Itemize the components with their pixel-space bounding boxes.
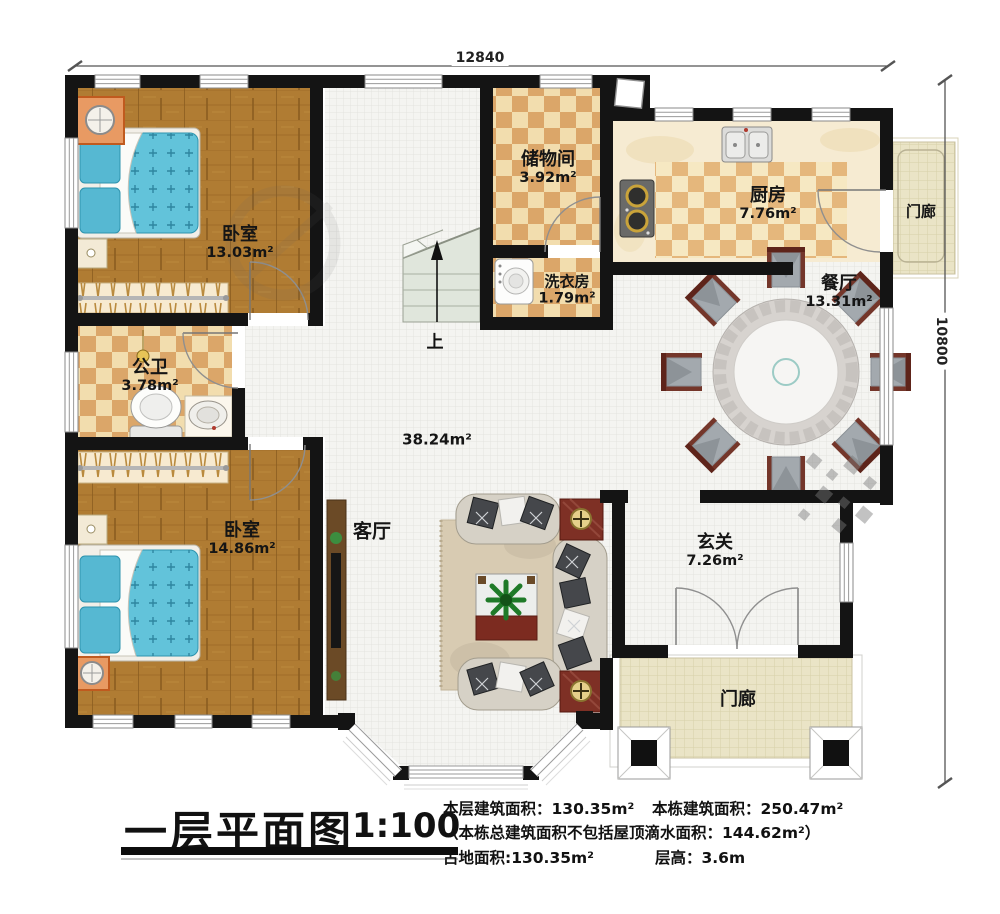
nightstand-icon bbox=[77, 97, 124, 144]
washing-machine-icon bbox=[495, 259, 533, 304]
stove-icon bbox=[620, 180, 654, 237]
wardrobe-bedroom1 bbox=[77, 283, 229, 313]
dimension-right: 10800 bbox=[933, 313, 949, 370]
stat-note: （本栋总建筑面积不包括屋顶滴水面积：144.62m²） bbox=[443, 821, 820, 843]
dining-table bbox=[713, 299, 859, 445]
title-underline-shadow bbox=[121, 858, 458, 860]
stairs-up-label: 上 bbox=[427, 328, 444, 353]
toilet-icon bbox=[130, 386, 182, 442]
sofa-right bbox=[553, 538, 607, 678]
wardrobe-bedroom2 bbox=[77, 452, 229, 483]
nightstand-icon bbox=[76, 657, 109, 690]
floor-plan-canvas bbox=[0, 0, 1000, 914]
kitchen-sink-icon bbox=[722, 127, 772, 162]
stat-floor-height: 层高：3.6m bbox=[655, 846, 745, 868]
title-underline bbox=[121, 847, 458, 855]
coffee-table bbox=[476, 574, 537, 640]
side-table-lamp bbox=[560, 671, 603, 712]
plant-icon bbox=[488, 582, 524, 618]
bed-bedroom2 bbox=[76, 545, 200, 661]
side-table-lamp bbox=[560, 499, 603, 540]
dimension-top: 12840 bbox=[452, 50, 509, 66]
floor-plan-page: 12840 10800 卧室 13.03m² 储物间 3.92m² 厨房 7.7… bbox=[0, 0, 1000, 914]
stat-floor-area: 本层建筑面积：130.35m² bbox=[443, 797, 634, 819]
stat-building-area: 本栋建筑面积：250.47m² bbox=[652, 797, 843, 819]
stat-land-area: 占地面积:130.35m² bbox=[443, 846, 594, 868]
sink-icon bbox=[185, 396, 232, 437]
staircase bbox=[403, 228, 480, 322]
sofa-top bbox=[456, 494, 560, 544]
tv-cabinet bbox=[327, 500, 346, 700]
sofa-bottom bbox=[458, 658, 562, 710]
